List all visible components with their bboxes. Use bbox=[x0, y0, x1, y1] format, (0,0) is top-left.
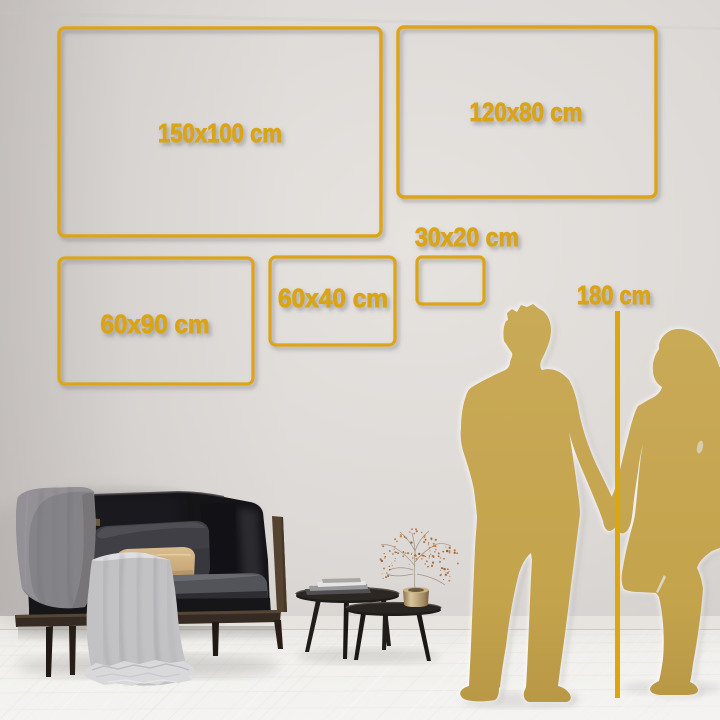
svg-text:30x20 cm: 30x20 cm bbox=[415, 222, 519, 252]
svg-text:150x100 cm: 150x100 cm bbox=[158, 118, 282, 148]
svg-text:180 cm: 180 cm bbox=[577, 280, 651, 310]
svg-text:120x80 cm: 120x80 cm bbox=[470, 97, 583, 127]
svg-text:60x40 cm: 60x40 cm bbox=[278, 283, 388, 313]
svg-text:60x90 cm: 60x90 cm bbox=[101, 309, 210, 339]
